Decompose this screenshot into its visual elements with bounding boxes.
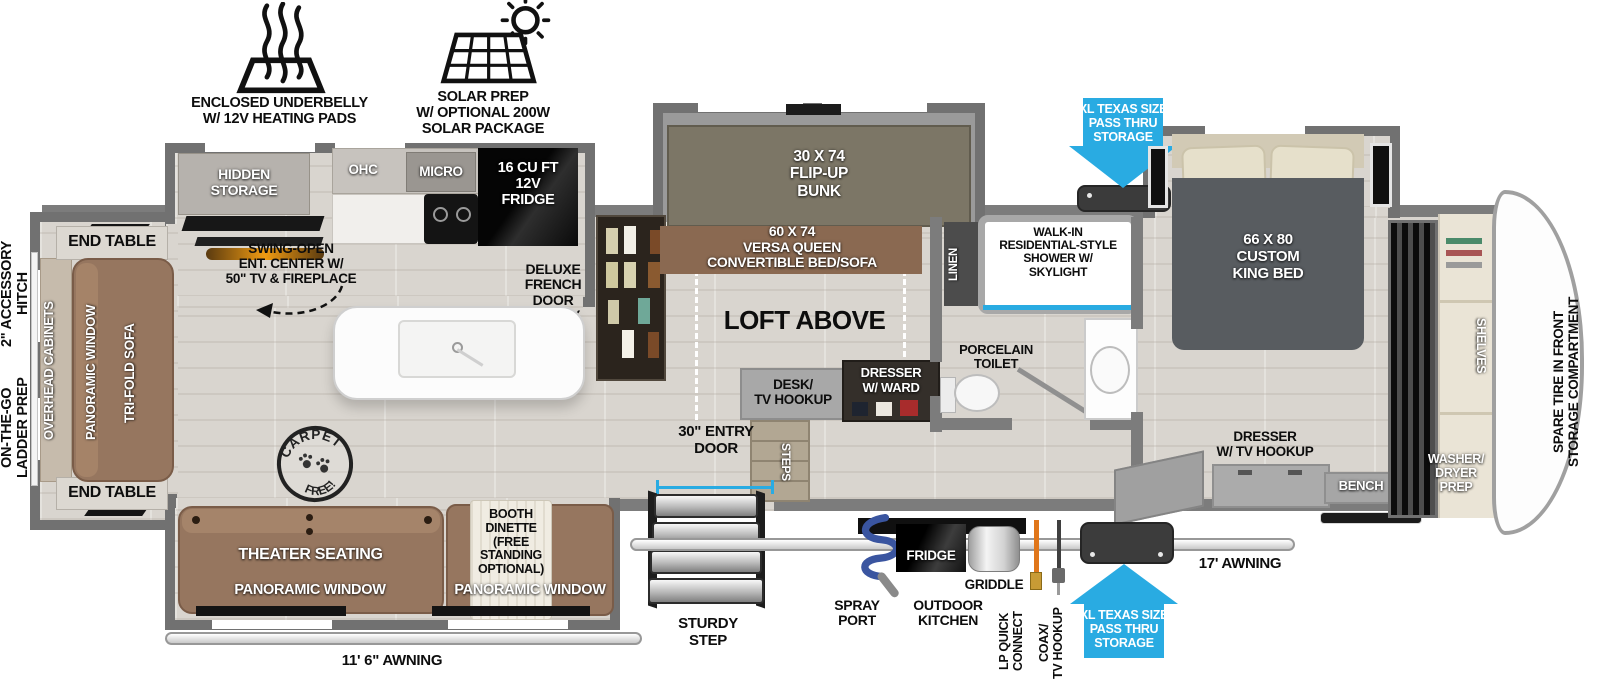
theater-seating-label: THEATER SEATING — [198, 546, 423, 564]
wardrobe-item — [876, 402, 892, 416]
recliner-button — [424, 516, 432, 524]
micro-label: MICRO — [406, 164, 476, 179]
awning-right-label: 17' AWNING — [1175, 556, 1305, 573]
pantry-item — [624, 262, 636, 288]
panoramic-window-dinette-label: PANORAMIC WINDOW — [440, 582, 620, 598]
drawer-pull — [1288, 470, 1302, 475]
pantry-item — [606, 228, 618, 254]
closet-item — [1446, 250, 1482, 256]
door-measure-line — [658, 486, 772, 489]
spray-port-label: SPRAY PORT — [816, 598, 898, 629]
bedroom-dresser — [1212, 464, 1330, 508]
cupholder — [306, 528, 313, 535]
trifold-sofa-label: TRI-FOLD SOFA — [122, 294, 149, 452]
bedroom-wall — [1131, 217, 1143, 329]
window-strip — [448, 620, 568, 629]
outdoor-kitchen-label: OUTDOOR KITCHEN — [902, 598, 994, 629]
bunk-label: 30 X 74 FLIP-UP BUNK — [667, 148, 971, 200]
bath-wall — [930, 217, 942, 362]
measure-tick — [771, 480, 774, 494]
loft-dash-line — [695, 252, 698, 420]
spare-tire-label: SPARE TIRE IN FRONT STORAGE COMPARTMENT — [1552, 262, 1600, 502]
recliner-button — [192, 516, 200, 524]
pantry-item — [648, 332, 659, 358]
slide-skirt — [196, 606, 346, 616]
pantry-item — [648, 262, 660, 288]
arrow-head-up — [1070, 564, 1178, 604]
king-bed-label: 66 X 80 CUSTOM KING BED — [1172, 232, 1364, 282]
pantry-item — [622, 330, 634, 358]
washer-dryer-label: WASHER/ DRYER PREP — [1412, 452, 1500, 494]
ent-center-label: SWING-OPEN ENT. CENTER W/ 50" TV & FIREP… — [196, 242, 386, 287]
entry-door-label: 30" ENTRY DOOR — [652, 424, 780, 457]
window-strip — [212, 620, 332, 629]
coax-tip — [1057, 583, 1060, 595]
hidden-storage-label: HIDDEN STORAGE — [178, 167, 310, 198]
measure-tick — [656, 480, 659, 494]
hatch-rivet — [1158, 552, 1163, 557]
burner — [433, 207, 448, 222]
pantry-item — [606, 262, 618, 288]
loft-above-label: LOFT ABOVE — [712, 306, 897, 335]
cupholder — [306, 514, 313, 521]
hatch-rivet — [1087, 193, 1092, 198]
wardrobe-item — [852, 402, 868, 416]
hatch-rivet — [1090, 552, 1095, 557]
window-strip — [205, 143, 315, 152]
shelves-label: SHELVES — [1462, 296, 1488, 396]
fridge-label: 16 CU FT 12V FRIDGE — [478, 160, 578, 209]
burner — [456, 207, 471, 222]
booth-dinette-label: BOOTH DINETTE (FREE STANDING OPTIONAL) — [468, 508, 554, 577]
pass-thru-arrow-bottom: XL TEXAS SIZE PASS THRU STORAGE — [1070, 564, 1178, 658]
panoramic-window-rear-label: PANORAMIC WINDOW — [84, 286, 109, 458]
slide-skirt — [432, 606, 590, 616]
linen-label: LINEN — [948, 230, 974, 298]
coax-connector — [1052, 568, 1065, 583]
end-table-bottom-label: END TABLE — [56, 484, 168, 502]
bunk-latch — [786, 104, 841, 115]
bath-wall — [942, 418, 1012, 430]
griddle-label: GRIDDLE — [948, 578, 1040, 593]
coax-cable — [1057, 520, 1061, 574]
bench-label: BENCH — [1324, 479, 1398, 494]
rear-bumper-stripe — [31, 252, 38, 486]
drawer-pull — [1238, 470, 1252, 475]
solar-label: SOLAR PREP W/ OPTIONAL 200W SOLAR PACKAG… — [388, 90, 578, 138]
step-tread — [648, 578, 764, 604]
pantry-item — [608, 300, 619, 324]
overhead-cabinets-label: OVERHEAD CABINETS — [42, 268, 71, 474]
lp-hose — [1034, 520, 1039, 578]
heating-pad-icon — [222, 2, 340, 96]
cooktop — [424, 194, 478, 244]
versa-queen-label: 60 X 74 VERSA QUEEN CONVERTIBLE BED/SOFA — [668, 224, 916, 271]
ohc-label: OHC — [334, 162, 392, 177]
vanity-sink — [1090, 346, 1130, 394]
lp-fitting — [1030, 572, 1042, 590]
awning-left-label: 11' 6" AWNING — [312, 653, 472, 670]
pass-thru-bottom-label: XL TEXAS SIZE PASS THRU STORAGE — [1070, 608, 1178, 650]
outdoor-fridge-label: FRIDGE — [896, 548, 966, 563]
pass-thru-hatch-bottom — [1080, 522, 1174, 564]
pass-thru-top-label: XL TEXAS SIZE PASS THRU STORAGE — [1069, 102, 1177, 144]
toilet-label: PORCELAIN TOILET — [942, 343, 1050, 372]
pantry-item — [638, 298, 650, 324]
shower-label: WALK-IN RESIDENTIAL-STYLE SHOWER W/ SKYL… — [982, 226, 1134, 279]
closet-item — [1446, 238, 1482, 244]
wardrobe-item — [900, 400, 918, 416]
dresser-ward-label: DRESSER W/ WARD — [842, 366, 940, 395]
bedroom-window — [1148, 146, 1168, 208]
swing-arrow-icon — [252, 284, 347, 324]
bedroom-dresser-label: DRESSER W/ TV HOOKUP — [1196, 430, 1334, 460]
closet-item — [1446, 262, 1482, 268]
bedroom-window — [1370, 143, 1392, 207]
tv-shelf — [182, 216, 325, 231]
sturdy-step-label: STURDY STEP — [648, 616, 768, 649]
awning-bar-left — [165, 632, 642, 645]
griddle — [968, 526, 1020, 572]
solar-prep-icon — [428, 0, 553, 92]
pantry-item — [624, 226, 636, 254]
desk-label: DESK/ TV HOOKUP — [740, 378, 846, 408]
pantry-item — [650, 230, 660, 254]
rv-floorplan-diagram: ENCLOSED UNDERBELLY W/ 12V HEATING PADS … — [0, 0, 1600, 690]
end-table-top-label: END TABLE — [56, 233, 168, 251]
lp-quick-connect-label: LP QUICK CONNECT — [998, 592, 1038, 690]
panoramic-window-theater-label: PANORAMIC WINDOW — [185, 582, 435, 598]
underbelly-label: ENCLOSED UNDERBELLY W/ 12V HEATING PADS — [172, 96, 387, 128]
step-tread — [654, 494, 758, 518]
toilet-bowl — [954, 374, 1000, 412]
step-tread — [650, 550, 762, 574]
shower-threshold — [983, 305, 1133, 310]
